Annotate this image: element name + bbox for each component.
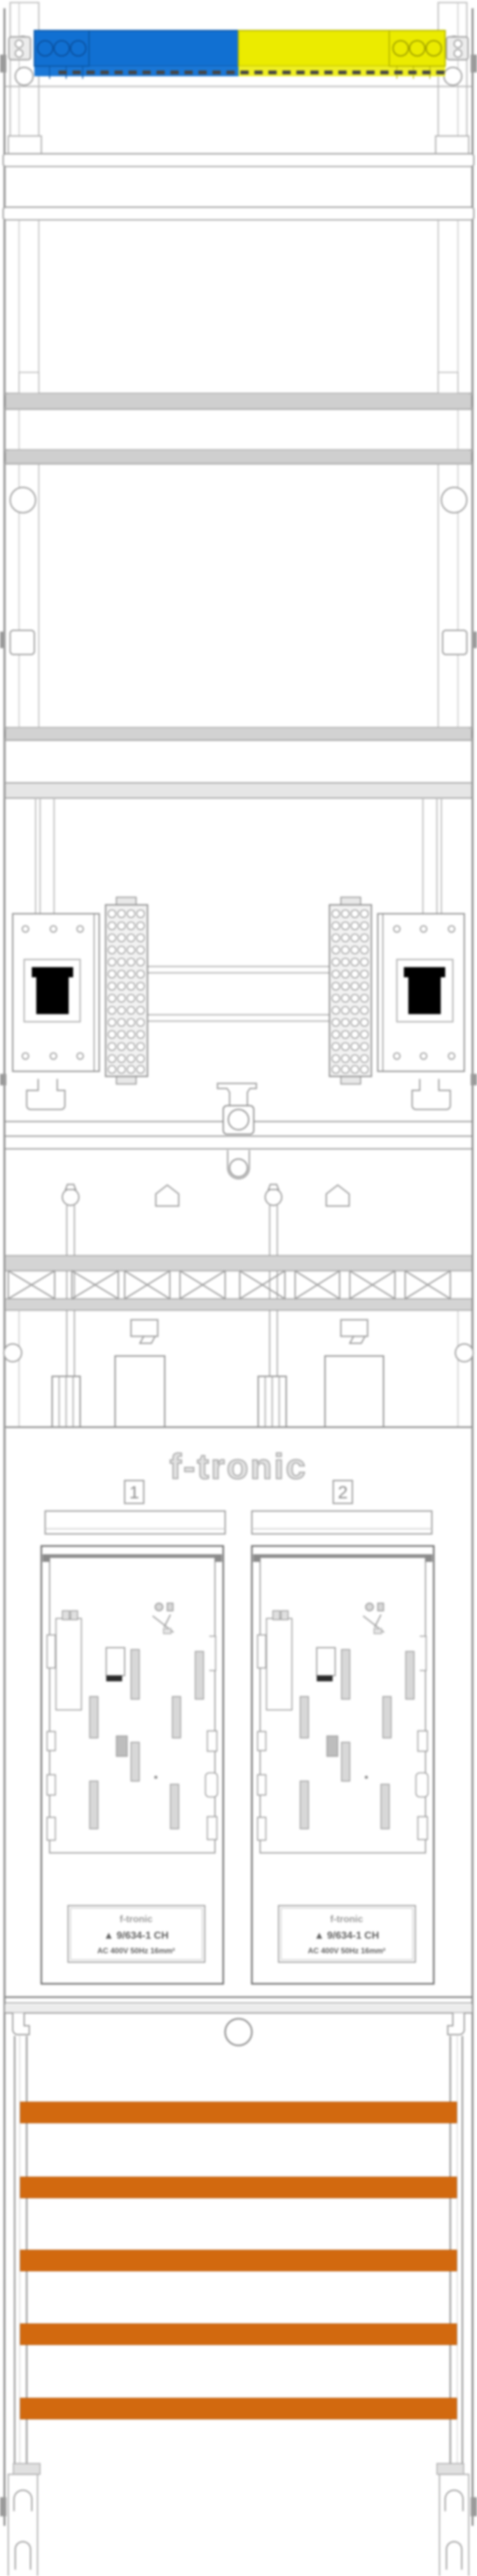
svg-text:2: 2 xyxy=(338,1482,348,1502)
svg-text:f-tronic: f-tronic xyxy=(170,1446,308,1486)
svg-text:1: 1 xyxy=(129,1482,139,1502)
